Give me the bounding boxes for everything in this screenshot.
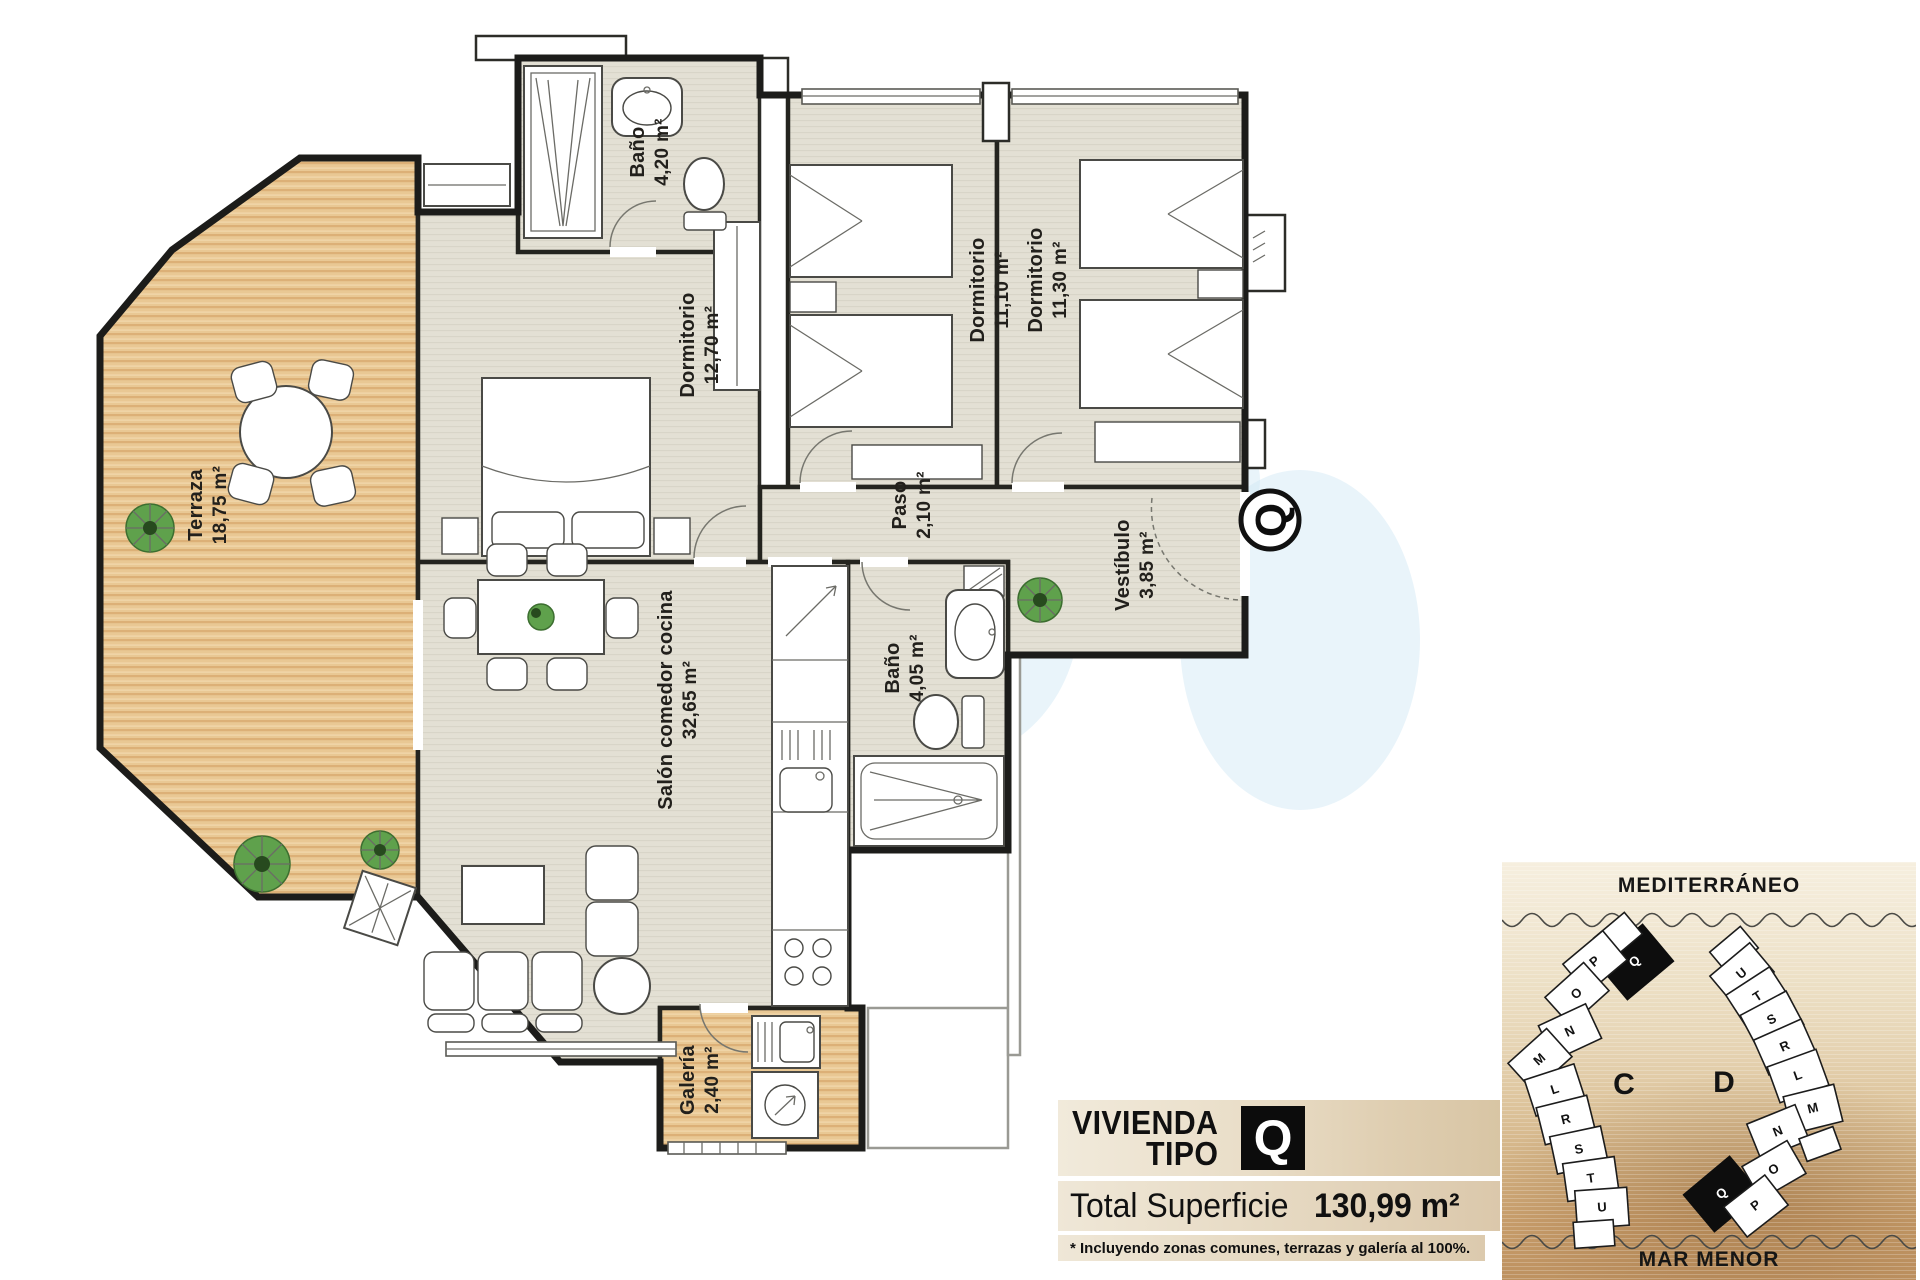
room-name: Dormitorio — [1025, 227, 1047, 332]
room-name: Terraza — [185, 469, 207, 541]
unit-badge-letter: Q — [1247, 503, 1296, 537]
site-plan-drawing: Q P O N M L R S T U C Q U T S R L — [1502, 862, 1916, 1280]
unit-block — [1573, 1220, 1615, 1249]
pillow — [572, 512, 644, 548]
room-area: 11,30 m² — [1050, 241, 1071, 318]
info-title: VIVIENDA TIPO — [1072, 1107, 1218, 1170]
room-name: Galería — [677, 1044, 699, 1114]
sofa-cushion — [586, 846, 638, 900]
room-area: 3,85 m² — [1137, 531, 1158, 599]
sofa-pad — [536, 1014, 582, 1032]
room-area: 32,65 m² — [680, 661, 701, 739]
sofa-pad — [482, 1014, 528, 1032]
site-plan: Q P O N M L R S T U C Q U T S R L — [1502, 862, 1916, 1280]
side-table — [594, 958, 650, 1014]
nightstand — [442, 518, 478, 554]
nightstand — [654, 518, 690, 554]
coffee-table — [462, 866, 544, 924]
sea-wave-line — [1502, 914, 1916, 927]
shower — [524, 66, 602, 238]
chair — [547, 544, 587, 576]
sofa-cushion — [424, 952, 474, 1010]
chair — [487, 658, 527, 690]
bathtub — [854, 756, 1004, 846]
sofa-cushion — [586, 902, 638, 956]
twin-bed — [790, 315, 952, 427]
toilet — [684, 158, 726, 230]
door-opening — [694, 557, 746, 567]
door-opening — [700, 1003, 748, 1013]
door-opening — [1012, 482, 1064, 492]
chair — [444, 598, 476, 638]
room-name: Baño — [627, 126, 649, 177]
type-letter-box: Q — [1241, 1106, 1305, 1170]
kitchen-counter — [772, 566, 848, 1006]
terrace-opening — [413, 600, 423, 750]
total-value: 130,99 m² — [1314, 1187, 1460, 1226]
room-name: Vestíbulo — [1112, 519, 1134, 611]
twin-bed — [1080, 300, 1243, 408]
total-label: Total Superficie — [1070, 1187, 1289, 1226]
building-c-label: C — [1613, 1068, 1635, 1101]
info-title-line1: VIVIENDA — [1072, 1107, 1218, 1138]
palm-plant — [234, 836, 290, 892]
palm-plant — [126, 504, 174, 552]
room-name: Salón comedor cocina — [655, 590, 677, 810]
washing-machine — [752, 1072, 818, 1138]
sofa-pad — [428, 1014, 474, 1032]
unit-badge: Q — [1241, 491, 1299, 549]
room-area: 2,10 m² — [914, 471, 935, 539]
building-d: Q U T S R L M N O P D — [1684, 926, 1843, 1237]
room-area: 18,75 m² — [210, 466, 231, 544]
toilet — [914, 695, 984, 749]
chair — [606, 598, 638, 638]
room-name: Baño — [882, 642, 904, 693]
info-total-row: Total Superficie 130,99 m² — [1058, 1181, 1500, 1231]
door-opening — [800, 482, 856, 492]
twin-bed — [1080, 160, 1243, 268]
sofa-cushion — [532, 952, 582, 1010]
galeria-fixtures — [752, 1016, 820, 1138]
door-opening — [860, 557, 908, 567]
info-title-line2: TIPO — [1072, 1138, 1218, 1169]
sea-label-mar-menor: MAR MENOR — [1502, 1248, 1916, 1272]
room-area: 12,70 m² — [702, 306, 723, 384]
room-name: Dormitorio — [967, 237, 989, 342]
twin-bed — [790, 165, 952, 277]
building-d-label: D — [1713, 1066, 1735, 1099]
dresser — [1095, 422, 1240, 462]
page: Terraza 18,75 m² Baño 4,20 m² Dormitorio… — [0, 0, 1920, 1280]
sea-wave-line — [1502, 1236, 1916, 1249]
room-name: Dormitorio — [677, 292, 699, 397]
table-plant — [528, 604, 554, 630]
room-name: Paso — [889, 480, 911, 529]
chair — [547, 658, 587, 690]
room-area: 4,05 m² — [907, 634, 928, 702]
plant — [1018, 578, 1062, 622]
laundry-sink — [752, 1016, 820, 1068]
exterior-structure — [868, 1008, 1008, 1148]
info-title-row: VIVIENDA TIPO Q — [1058, 1100, 1500, 1176]
sink — [946, 590, 1004, 678]
room-area: 2,40 m² — [702, 1046, 723, 1114]
building-c: Q P O N M L R S T U C — [1508, 912, 1673, 1248]
nightstand — [790, 282, 836, 312]
sofa-cushion — [478, 952, 528, 1010]
chair — [487, 544, 527, 576]
room-area: 11,10 m² — [992, 251, 1013, 328]
nightstand — [1198, 270, 1243, 298]
ac-niche — [1245, 215, 1285, 291]
door-opening — [610, 247, 656, 257]
pillow — [492, 512, 564, 548]
unit-letter: U — [1597, 1199, 1607, 1215]
plant — [361, 831, 399, 869]
sea-label-mediterraneo: MEDITERRÁNEO — [1502, 874, 1916, 898]
room-area: 4,20 m² — [652, 118, 673, 186]
info-block: VIVIENDA TIPO Q Total Superficie 130,99 … — [1058, 1100, 1500, 1261]
info-footnote: * Incluyendo zonas comunes, terrazas y g… — [1058, 1235, 1485, 1261]
